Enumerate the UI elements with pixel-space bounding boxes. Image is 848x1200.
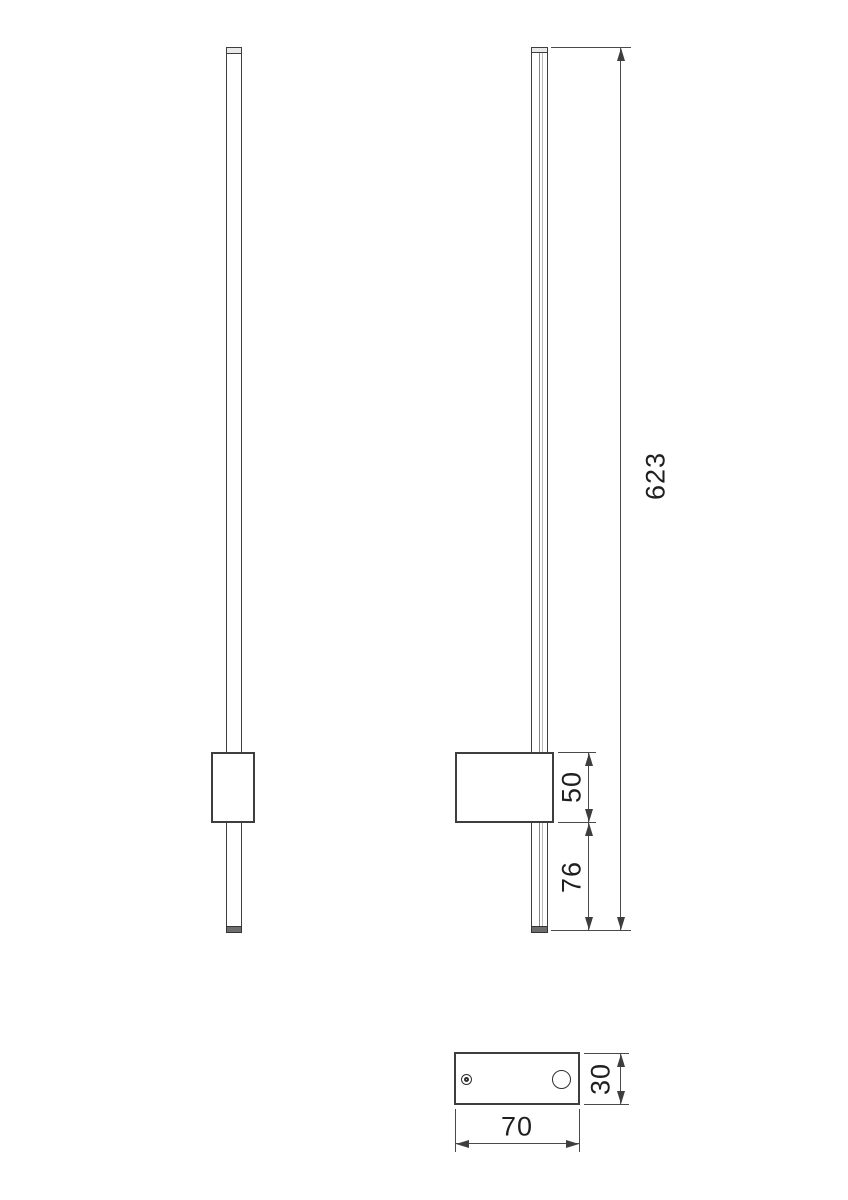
arrow-up-icon bbox=[585, 753, 593, 766]
arrow-down-icon bbox=[585, 917, 593, 930]
screw-hole-center-icon bbox=[464, 1077, 469, 1082]
side-bar-top-cap bbox=[531, 47, 548, 53]
arrow-up-icon bbox=[617, 48, 625, 61]
dimension-label-50: 50 bbox=[557, 771, 588, 803]
arrow-down-icon bbox=[617, 1091, 625, 1104]
arrow-down-icon bbox=[585, 809, 593, 822]
extension-line-plate-right bbox=[579, 1109, 580, 1152]
dimension-label-76: 76 bbox=[557, 861, 588, 893]
dimension-line-76 bbox=[588, 823, 589, 930]
side-mounting-box bbox=[455, 752, 554, 823]
dimension-label-623: 623 bbox=[641, 452, 672, 500]
arrow-up-icon bbox=[617, 1054, 625, 1067]
dimension-label-30: 30 bbox=[586, 1063, 617, 1095]
cable-hole-icon bbox=[552, 1070, 571, 1089]
dimension-label-70: 70 bbox=[501, 1112, 533, 1143]
extension-line-bottom bbox=[551, 930, 631, 931]
arrow-left-icon bbox=[456, 1140, 469, 1148]
front-bar-bottom-cap bbox=[226, 926, 242, 933]
dimension-line-623 bbox=[620, 48, 621, 930]
side-bar-bottom-cap bbox=[531, 926, 548, 933]
arrow-right-icon bbox=[566, 1140, 579, 1148]
dimension-drawing: 623 50 76 30 70 bbox=[0, 0, 848, 1200]
arrow-down-icon bbox=[617, 917, 625, 930]
arrow-up-icon bbox=[585, 823, 593, 836]
dimension-line-70 bbox=[456, 1143, 580, 1144]
front-mounting-box bbox=[211, 752, 255, 823]
front-bar-top-cap bbox=[226, 47, 242, 54]
extension-line-plate-bottom bbox=[584, 1104, 629, 1105]
